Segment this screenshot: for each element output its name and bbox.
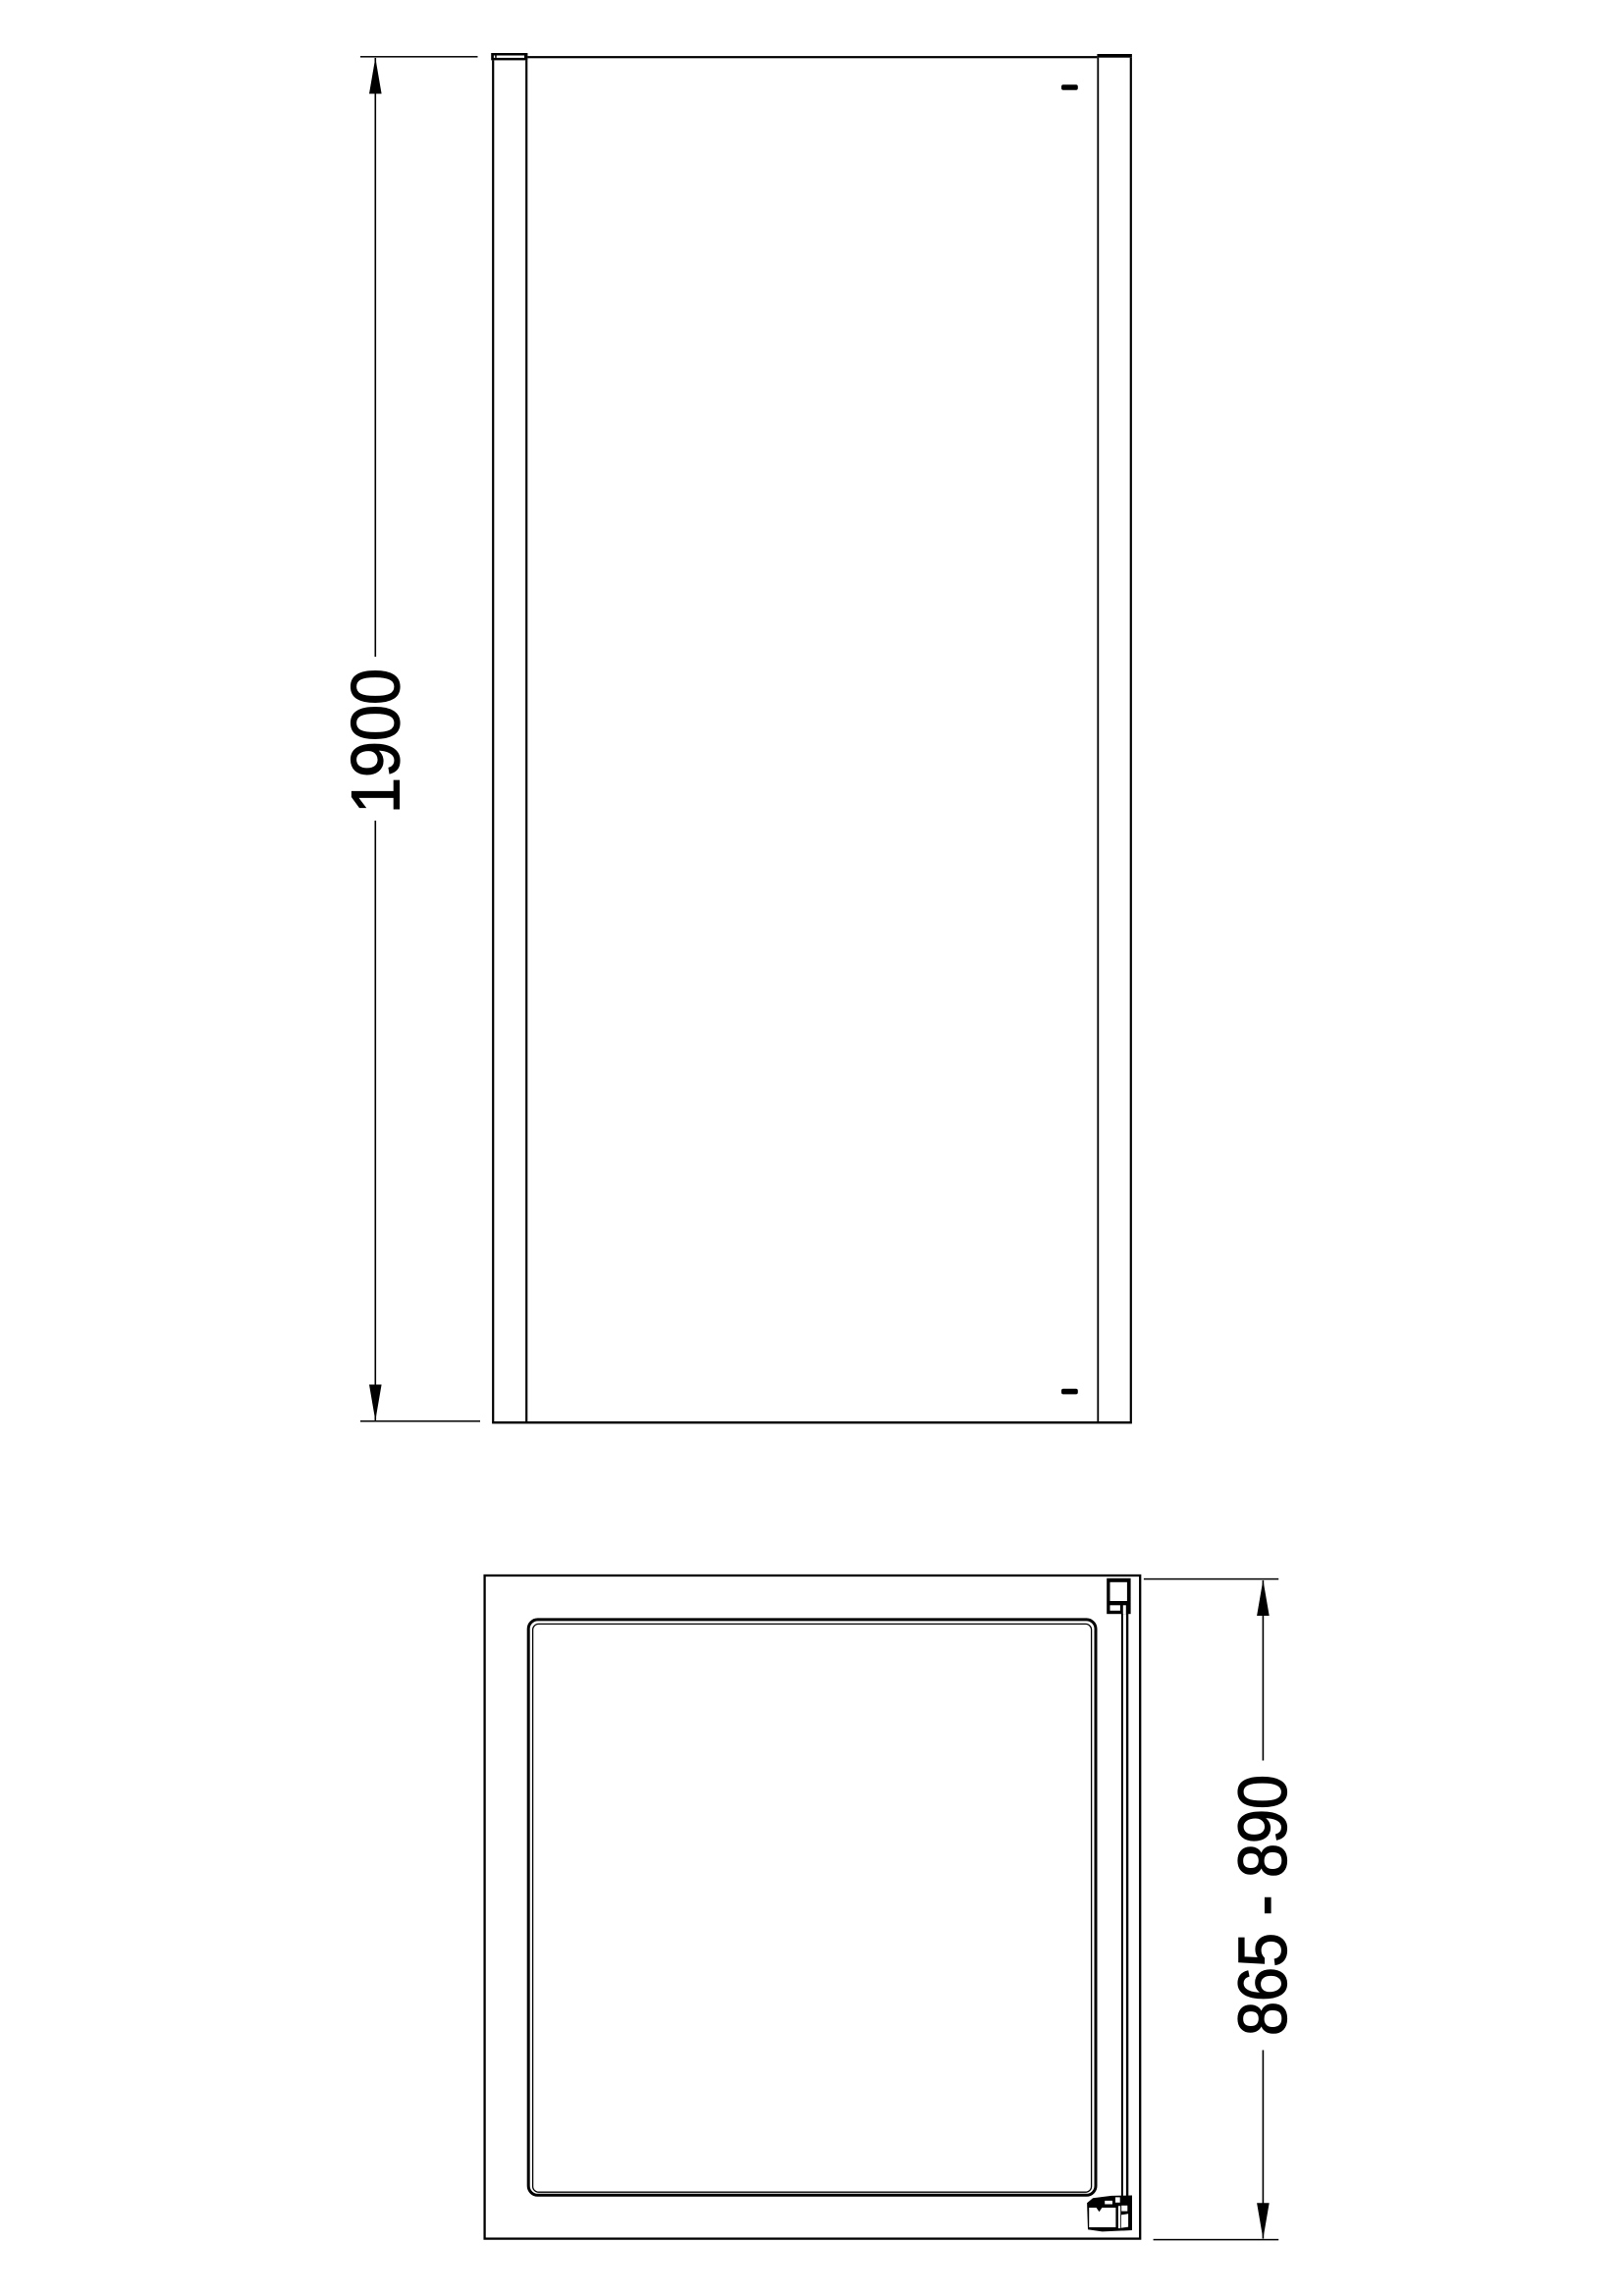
svg-text:1900: 1900 — [337, 668, 413, 814]
svg-text:865 - 890: 865 - 890 — [1224, 1775, 1301, 2036]
